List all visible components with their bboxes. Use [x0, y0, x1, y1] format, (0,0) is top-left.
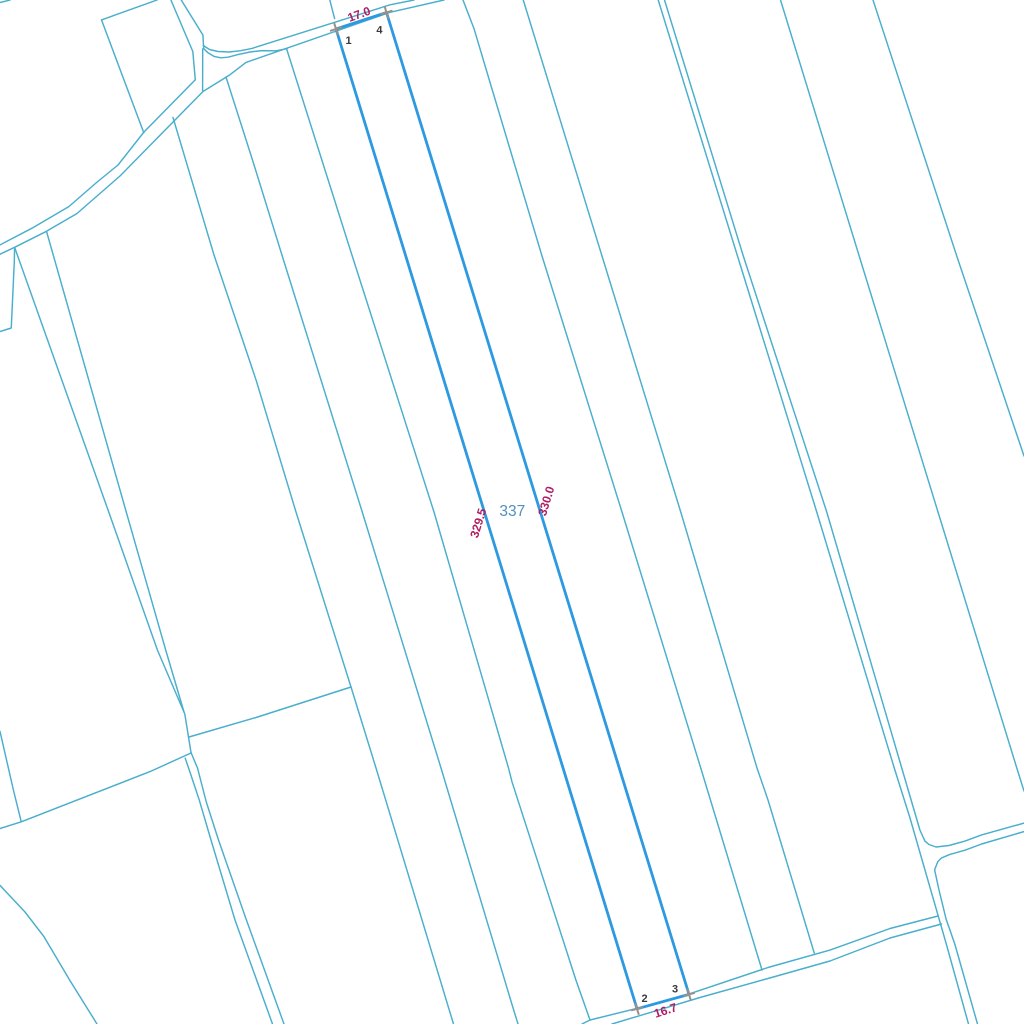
- svg-text:1: 1: [345, 35, 351, 47]
- svg-text:2: 2: [641, 993, 647, 1005]
- svg-text:337: 337: [499, 503, 525, 520]
- svg-text:3: 3: [672, 984, 678, 996]
- svg-text:4: 4: [376, 25, 383, 37]
